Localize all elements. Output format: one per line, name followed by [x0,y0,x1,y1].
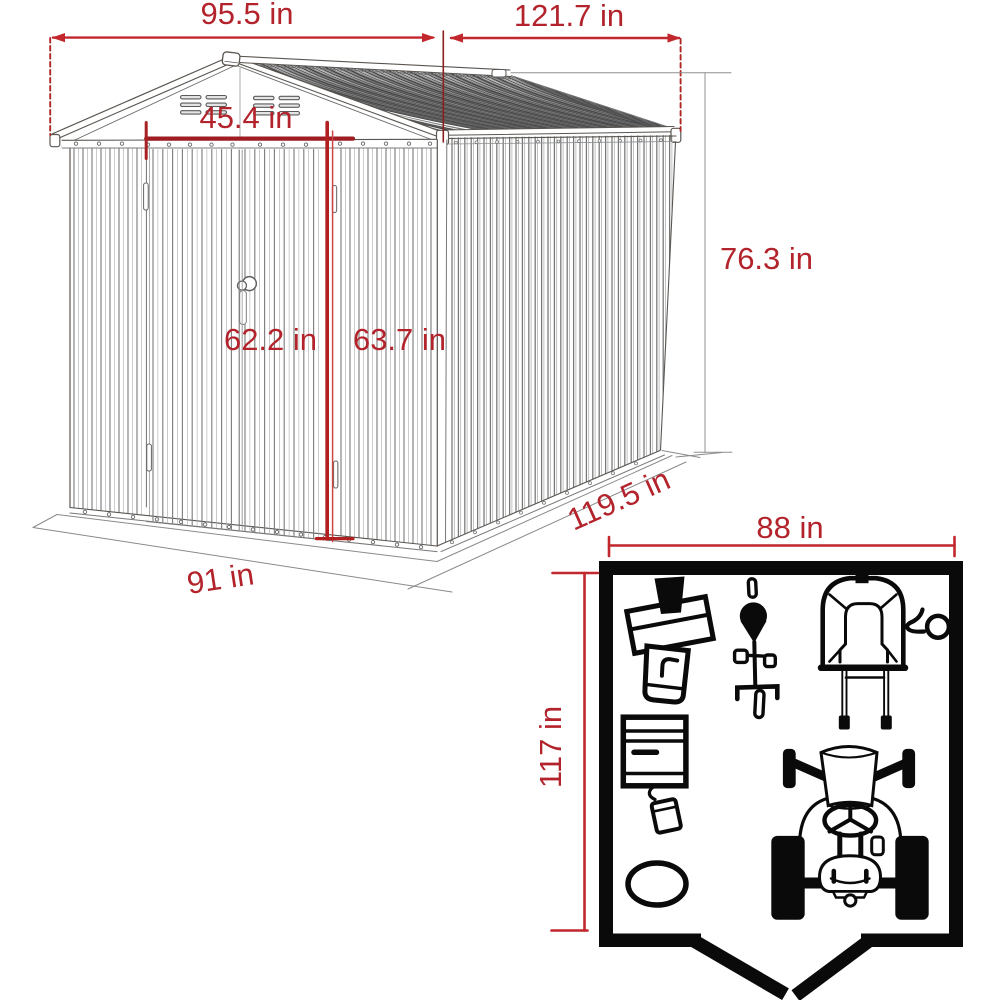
svg-text:117 in: 117 in [533,706,568,788]
svg-text:63.7 in: 63.7 in [353,322,446,357]
svg-text:95.5 in: 95.5 in [200,0,293,31]
svg-text:45.4 in: 45.4 in [199,100,292,135]
svg-text:121.7 in: 121.7 in [514,0,624,33]
svg-text:88 in: 88 in [756,510,823,545]
svg-text:62.2 in: 62.2 in [224,322,317,357]
svg-text:76.3 in: 76.3 in [720,241,813,276]
